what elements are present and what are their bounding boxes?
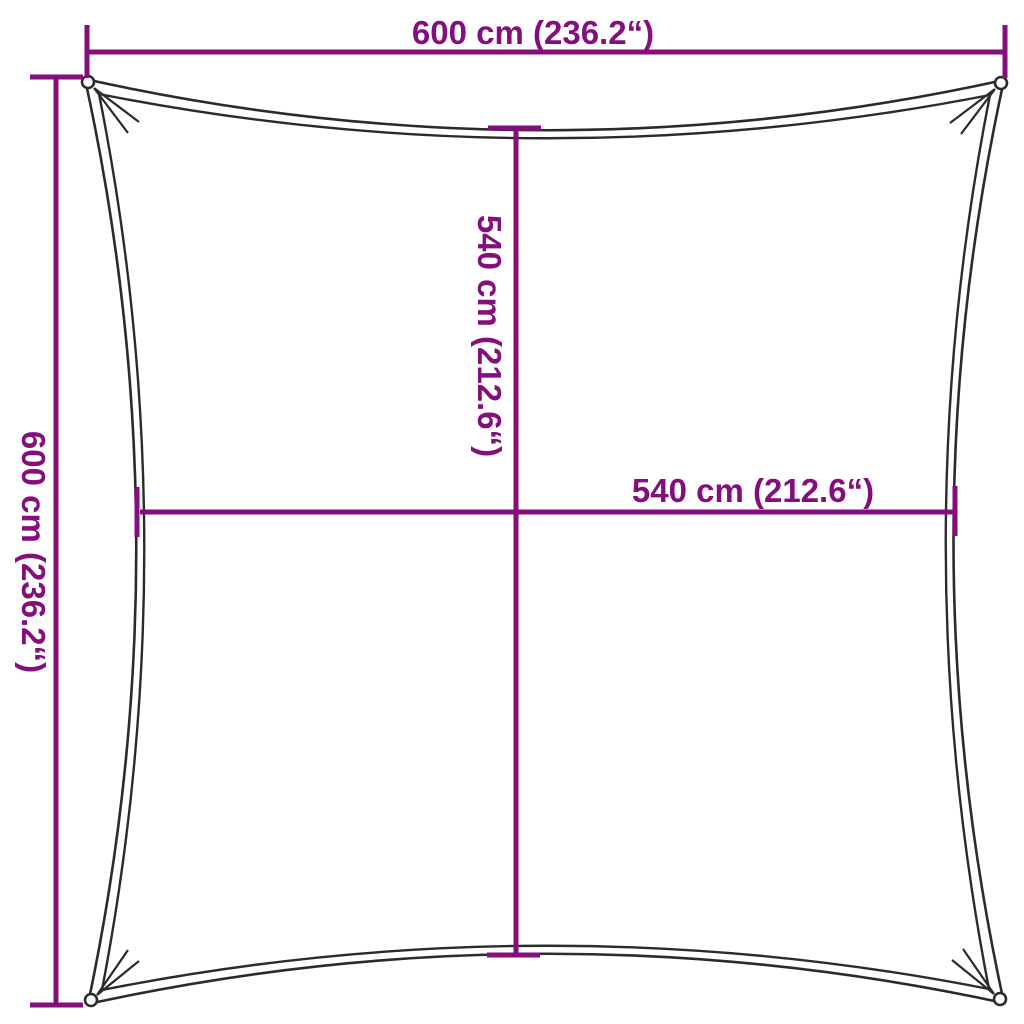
grommet-bottom-left-icon [85, 994, 97, 1006]
sail-outline-inner [99, 94, 990, 990]
left-dimension-label: 600 cm (236.2“) [15, 431, 52, 673]
sail-outline-outer [85, 79, 1004, 1004]
center-vertical-dimension-label: 540 cm (212.6“) [471, 215, 508, 457]
top-dimension-label: 600 cm (236.2“) [412, 14, 654, 51]
grommet-top-right-icon [995, 77, 1007, 89]
center-horizontal-dimension-label: 540 cm (212.6“) [632, 472, 874, 509]
shade-sail-diagram: 600 cm (236.2“) 600 cm (236.2“) 540 cm (… [0, 0, 1024, 1024]
dimension-diagram: 600 cm (236.2“) 600 cm (236.2“) 540 cm (… [0, 0, 1024, 1024]
grommet-bottom-right-icon [994, 993, 1006, 1005]
